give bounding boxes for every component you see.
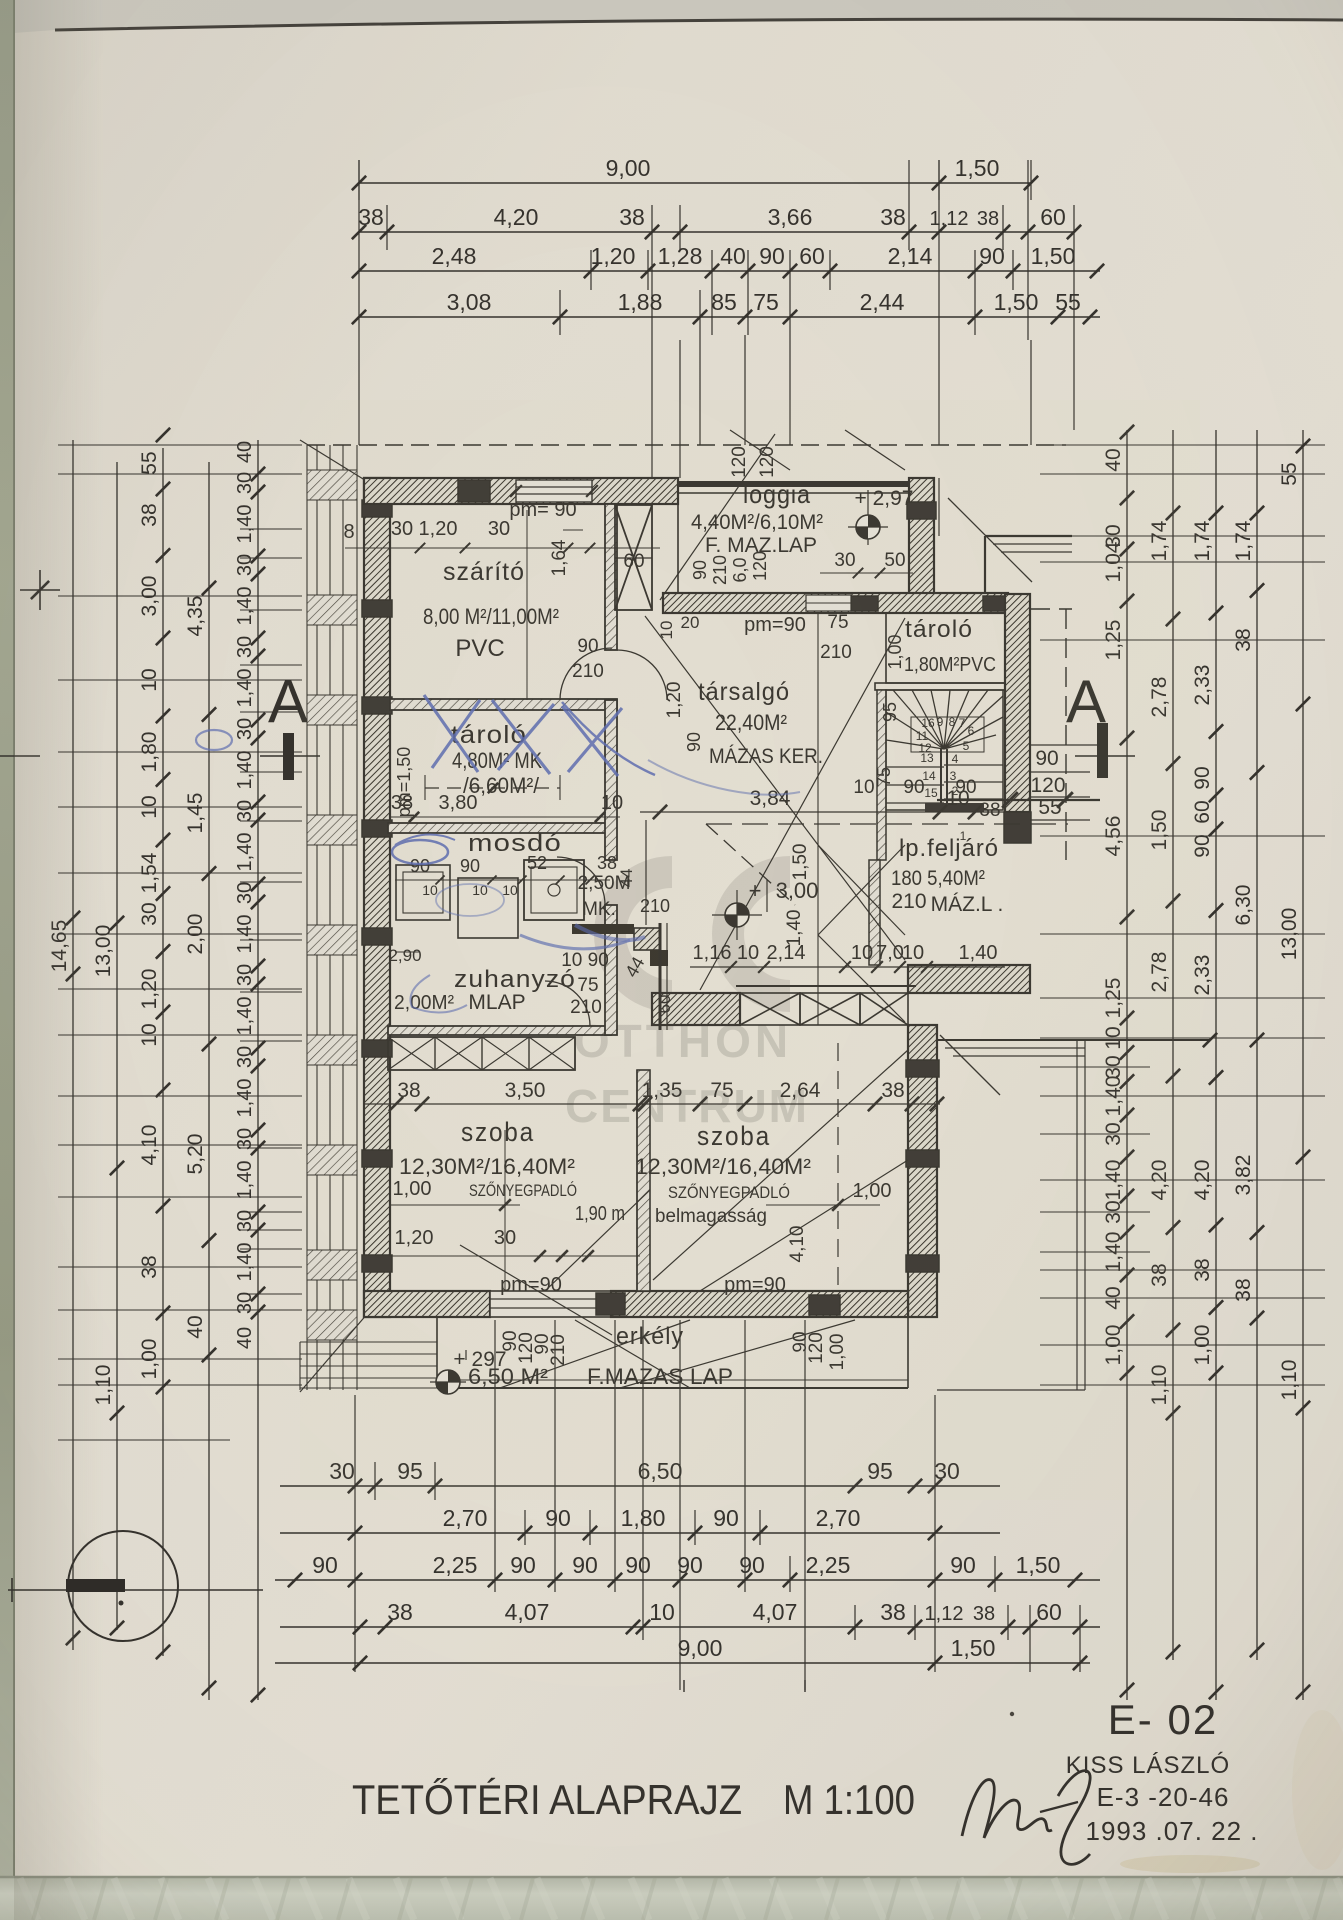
svg-text:1993 .07. 22 .: 1993 .07. 22 . [1085,1816,1258,1846]
svg-text:E-3 -20-46: E-3 -20-46 [1097,1782,1230,1812]
svg-text:TETŐTÉRI ALAPRAJZ: TETŐTÉRI ALAPRAJZ [352,1776,742,1823]
svg-text:E- 02: E- 02 [1108,1696,1218,1743]
svg-text:M 1:100: M 1:100 [783,1776,915,1823]
